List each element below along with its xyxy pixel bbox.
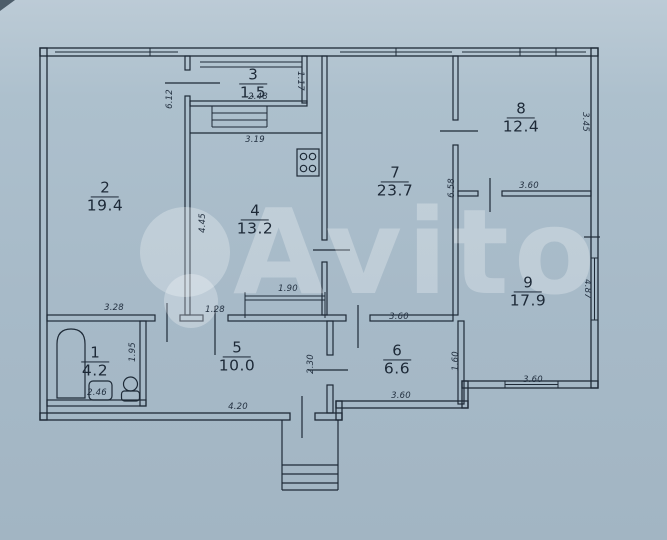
photo-corner-shadow (0, 0, 15, 11)
entrance-steps (282, 420, 338, 490)
toilet-icon (122, 377, 140, 401)
dimension-label: 3.60 (389, 312, 409, 322)
dimension-label: 1.17 (295, 71, 305, 91)
room-area: 12.4 (503, 118, 540, 135)
dimension-label: 1.60 (451, 351, 461, 371)
room-number: 1 (81, 345, 109, 362)
stove-icon (297, 149, 319, 176)
room-number: 5 (223, 340, 251, 357)
dimension-label: 3.45 (580, 112, 590, 132)
dimension-label: 3.60 (523, 375, 543, 385)
room-area: 23.7 (377, 182, 414, 199)
room-label-7: 723.7 (377, 162, 414, 199)
dimension-label: 4.20 (228, 402, 248, 412)
pantry-steps (212, 106, 267, 127)
dimension-label: 1.90 (278, 284, 298, 294)
dimension-label: 4.87 (582, 279, 592, 299)
room-label-4: 413.2 (237, 200, 274, 237)
dimension-label: 4.45 (198, 213, 208, 233)
room-area: 6.6 (383, 360, 411, 377)
dimension-label: 3.60 (391, 391, 411, 401)
room-area: 10.0 (219, 357, 256, 374)
dimension-label: 2.48 (248, 92, 268, 102)
room-area: 13.2 (237, 220, 274, 237)
dimension-label: 6.58 (447, 178, 457, 198)
room-label-1: 14.2 (81, 342, 109, 379)
room-number: 8 (507, 101, 535, 118)
room-label-9: 917.9 (510, 272, 547, 309)
room-number: 2 (91, 180, 119, 197)
room-label-5: 510.0 (219, 337, 256, 374)
room-label-2: 219.4 (87, 177, 124, 214)
watermark-dot-small (164, 274, 218, 328)
room-number: 6 (383, 343, 411, 360)
floor-plan-photo: Avito 14.2219.431.5413.2510.066.6723.781… (0, 0, 667, 540)
dimension-label: 1.95 (128, 342, 138, 362)
room-number: 7 (381, 165, 409, 182)
dimension-label: 6.12 (165, 89, 175, 109)
dimension-label: 2.30 (306, 354, 316, 374)
room-label-8: 812.4 (503, 98, 540, 135)
dimension-label: 3.60 (519, 181, 539, 191)
room-area: 17.9 (510, 292, 547, 309)
room-number: 9 (514, 275, 542, 292)
dimension-label: 3.19 (245, 135, 265, 145)
room-area: 19.4 (87, 197, 124, 214)
room-area: 4.2 (81, 362, 109, 379)
dimension-label: 3.28 (104, 303, 124, 313)
room-number: 4 (241, 203, 269, 220)
dimension-label: 2.46 (87, 388, 107, 398)
room-label-6: 66.6 (383, 340, 411, 377)
room-number: 3 (239, 67, 267, 84)
dimension-label: 1.28 (205, 305, 225, 315)
